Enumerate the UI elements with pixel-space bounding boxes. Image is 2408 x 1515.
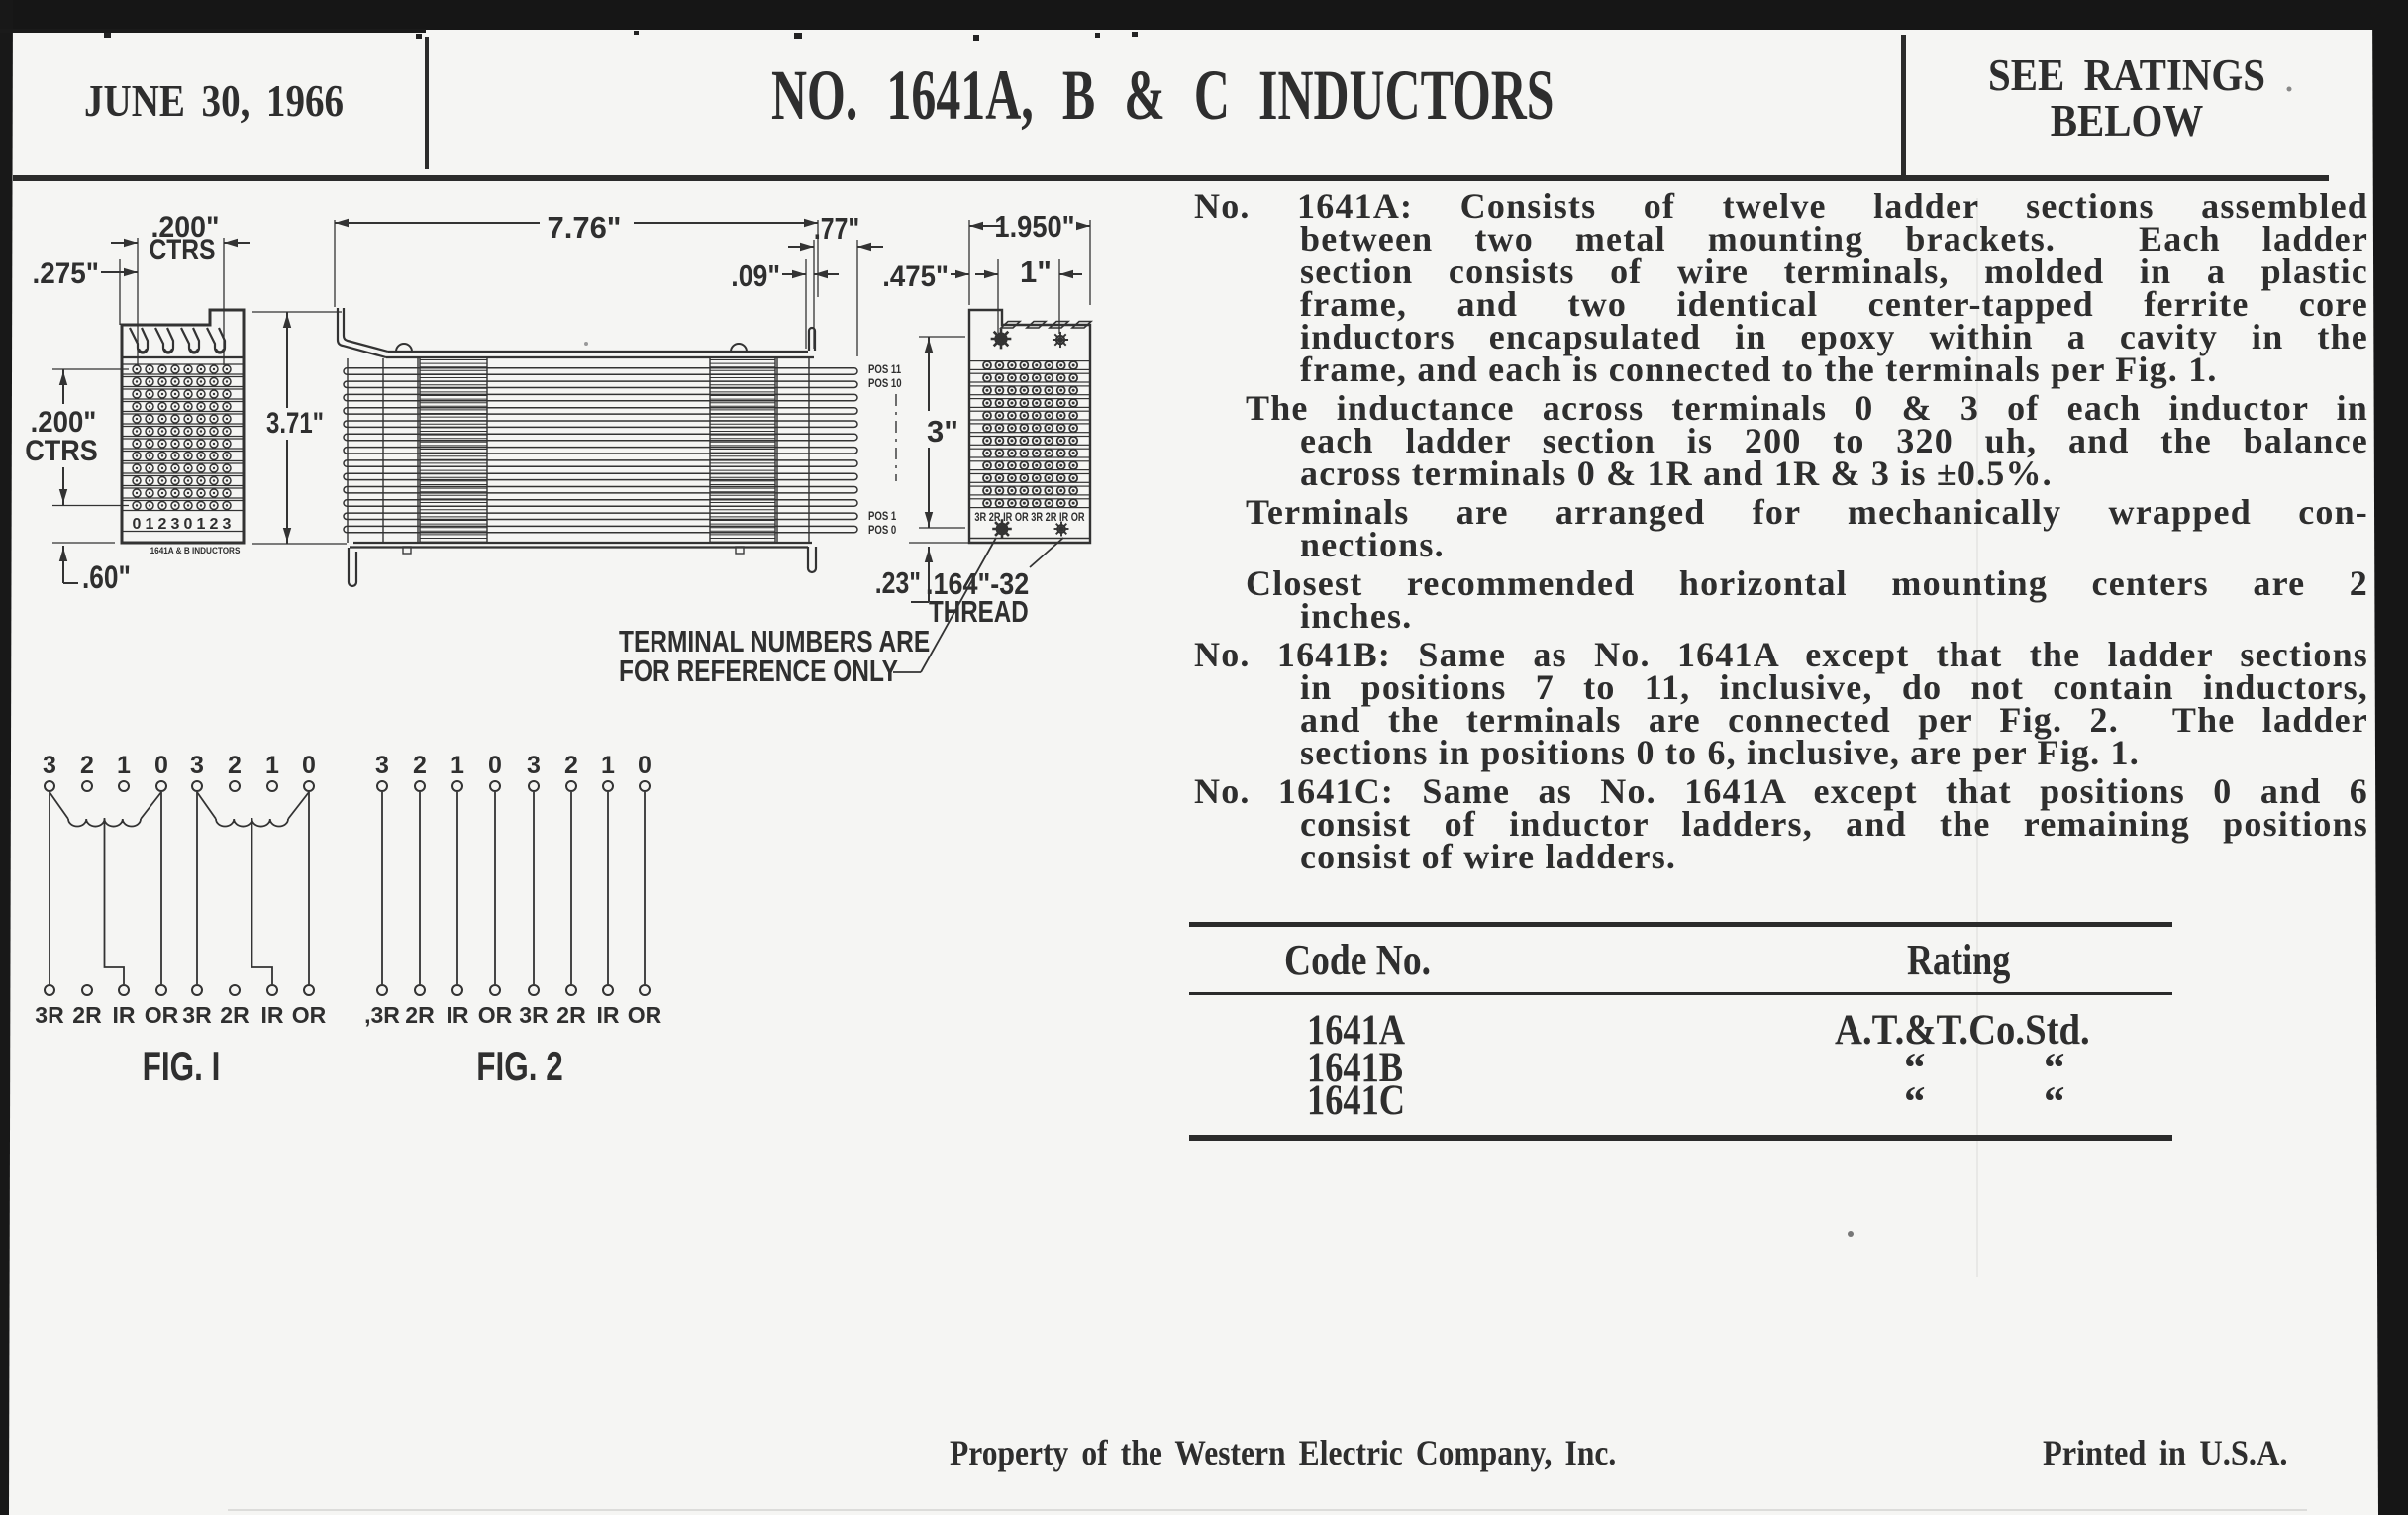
svg-text:2R: 2R xyxy=(556,1002,586,1028)
svg-text:CTRS: CTRS xyxy=(25,435,97,468)
svg-text:POS 1: POS 1 xyxy=(868,510,896,523)
svg-text:2: 2 xyxy=(80,752,94,779)
svg-text:POS 10: POS 10 xyxy=(868,377,902,390)
svg-text:3.71": 3.71" xyxy=(266,405,324,439)
svg-text:POS 0: POS 0 xyxy=(868,524,896,537)
svg-text:OR: OR xyxy=(292,1002,327,1028)
svg-text:CTRS: CTRS xyxy=(150,233,216,266)
svg-text:3: 3 xyxy=(375,752,389,779)
svg-text:1": 1" xyxy=(1020,254,1052,289)
svg-text:3R: 3R xyxy=(35,1002,64,1028)
svg-text:0: 0 xyxy=(638,752,652,779)
svg-text:.77": .77" xyxy=(814,211,859,245)
svg-text:OR: OR xyxy=(478,1002,513,1028)
svg-text:0: 0 xyxy=(184,516,193,533)
svg-text:3: 3 xyxy=(171,516,180,533)
svg-text:3: 3 xyxy=(43,752,56,779)
svg-text:3R 2R IR OR 3R 2R IR OR: 3R 2R IR OR 3R 2R IR OR xyxy=(974,511,1084,524)
svg-text:3R: 3R xyxy=(519,1002,549,1028)
svg-text:2R: 2R xyxy=(72,1002,102,1028)
svg-text:1: 1 xyxy=(197,516,206,533)
svg-text:POS 11: POS 11 xyxy=(868,363,901,376)
svg-text:0: 0 xyxy=(488,752,502,779)
svg-text:0: 0 xyxy=(154,752,168,779)
svg-text:IR: IR xyxy=(447,1002,469,1028)
svg-text:OR: OR xyxy=(628,1002,662,1028)
svg-text:1.950": 1.950" xyxy=(994,210,1074,244)
svg-text:IR: IR xyxy=(261,1002,284,1028)
svg-text:2R: 2R xyxy=(405,1002,435,1028)
svg-text:,3R: ,3R xyxy=(364,1002,400,1028)
svg-text:IR: IR xyxy=(597,1002,620,1028)
svg-text:.475": .475" xyxy=(882,260,949,293)
svg-text:1641A & B INDUCTORS: 1641A & B INDUCTORS xyxy=(150,546,241,555)
svg-text:0: 0 xyxy=(133,516,142,533)
svg-text:2: 2 xyxy=(228,752,242,779)
svg-text:1: 1 xyxy=(601,752,615,779)
svg-text:2: 2 xyxy=(413,752,427,779)
svg-text:3R: 3R xyxy=(182,1002,212,1028)
svg-text:2R: 2R xyxy=(220,1002,250,1028)
svg-text:2: 2 xyxy=(210,516,219,533)
svg-text:7.76": 7.76" xyxy=(547,210,621,245)
svg-text:OR: OR xyxy=(145,1002,179,1028)
svg-text:3: 3 xyxy=(527,752,541,779)
svg-text:FIG. I: FIG. I xyxy=(143,1043,221,1090)
svg-text:THREAD: THREAD xyxy=(929,594,1029,629)
svg-text:.275": .275" xyxy=(32,257,99,290)
svg-text:FOR REFERENCE ONLY: FOR REFERENCE ONLY xyxy=(619,654,898,687)
svg-text:3": 3" xyxy=(927,414,958,449)
svg-text:1: 1 xyxy=(451,752,464,779)
svg-text:3: 3 xyxy=(223,516,232,533)
svg-text:2: 2 xyxy=(564,752,578,779)
svg-text:1: 1 xyxy=(146,516,154,533)
svg-text:.60": .60" xyxy=(82,561,131,596)
svg-text:FIG. 2: FIG. 2 xyxy=(476,1043,562,1090)
svg-text:1: 1 xyxy=(265,752,279,779)
svg-text:.09": .09" xyxy=(731,259,780,293)
svg-text:IR: IR xyxy=(113,1002,136,1028)
svg-text:.23": .23" xyxy=(875,565,921,599)
svg-text:0: 0 xyxy=(302,752,316,779)
svg-text:1: 1 xyxy=(117,752,131,779)
svg-text:2: 2 xyxy=(158,516,167,533)
svg-text:3: 3 xyxy=(190,752,204,779)
